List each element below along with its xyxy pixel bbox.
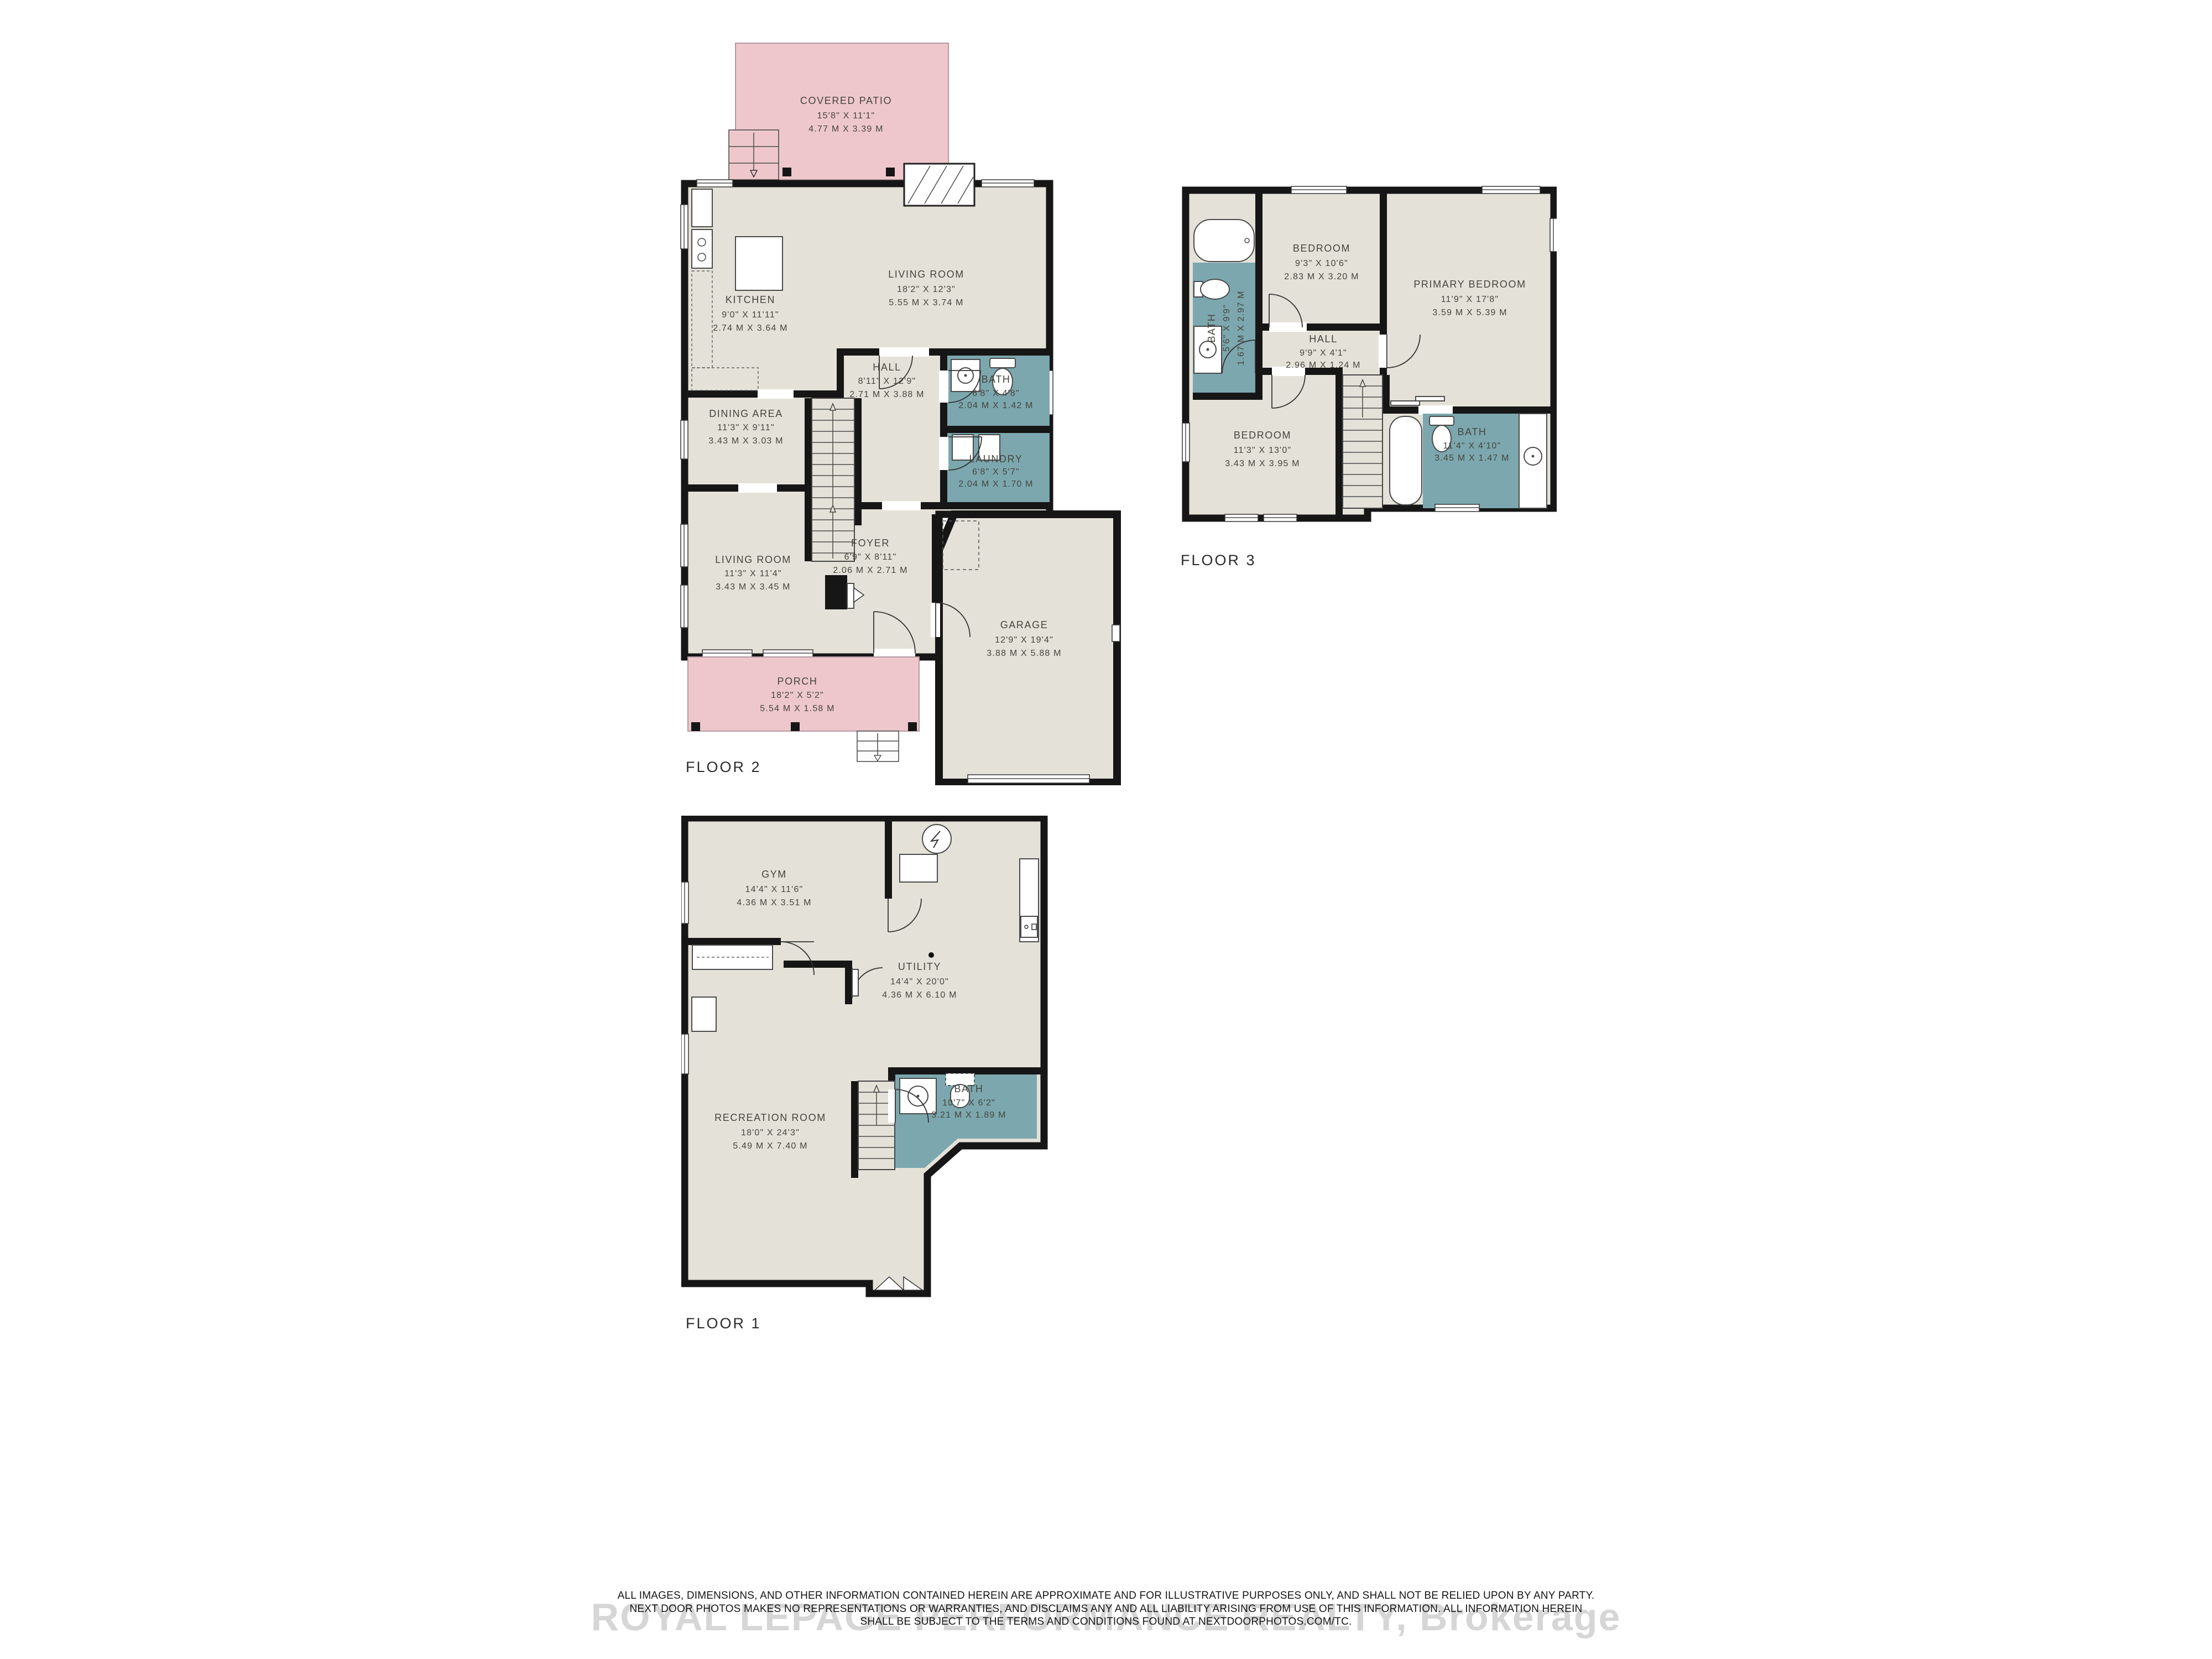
svg-text:11'9" X 17'8": 11'9" X 17'8" <box>1441 295 1499 304</box>
room-label-dining-area: DINING AREA 11'3" X 9'11" 3.43 M X 3.03 … <box>708 408 783 446</box>
svg-text:18'2" X 12'3": 18'2" X 12'3" <box>897 285 956 294</box>
svg-text:BEDROOM: BEDROOM <box>1234 430 1291 441</box>
floor1-plan: GYM 14'4" X 11'6" 4.36 M X 3.51 M UTILIT… <box>681 816 1052 1302</box>
toilet-tank <box>990 358 1015 368</box>
svg-text:14'4" X 20'0": 14'4" X 20'0" <box>890 977 949 987</box>
svg-text:2.04 M X 1.70 M: 2.04 M X 1.70 M <box>958 479 1033 489</box>
floor3-plan: BEDROOM 9'3" X 10'6" 2.83 M X 3.20 M PRI… <box>1181 185 1557 534</box>
floor2-plan: COVERED PATIO 15'8" X 11'1" 4.77 M X 3.3… <box>680 39 1123 785</box>
fireplace <box>904 164 974 206</box>
svg-text:PRIMARY BEDROOM: PRIMARY BEDROOM <box>1413 279 1526 290</box>
svg-text:9'3" X 10'6": 9'3" X 10'6" <box>1295 259 1348 268</box>
svg-text:GYM: GYM <box>761 869 787 880</box>
svg-text:10'7" X 6'2": 10'7" X 6'2" <box>942 1098 995 1108</box>
svg-text:3.88 M X 5.88 M: 3.88 M X 5.88 M <box>987 649 1061 658</box>
staircase-f3 <box>1343 375 1383 508</box>
water-heater <box>922 825 951 853</box>
svg-text:BATH: BATH <box>981 374 1010 385</box>
svg-text:RECREATION ROOM: RECREATION ROOM <box>714 1112 826 1123</box>
svg-text:UTILITY: UTILITY <box>898 961 941 972</box>
svg-text:HALL: HALL <box>1309 333 1337 345</box>
svg-text:11'3" X 11'4": 11'3" X 11'4" <box>724 569 782 578</box>
floor3-label: FLOOR 3 <box>1181 552 1256 569</box>
svg-text:BATH: BATH <box>954 1083 983 1094</box>
disclaimer-line-3: SHALL BE SUBJECT TO THE TERMS AND CONDIT… <box>0 1615 2212 1629</box>
disclaimer-line-2: NEXT DOOR PHOTOS MAKES NO REPRESENTATION… <box>0 1603 2212 1616</box>
svg-text:12'9" X 19'4": 12'9" X 19'4" <box>995 635 1053 645</box>
svg-text:LIVING ROOM: LIVING ROOM <box>888 269 964 280</box>
svg-text:4.36 M X 3.51 M: 4.36 M X 3.51 M <box>737 898 811 907</box>
disclaimer-text: ALL IMAGES, DIMENSIONS, AND OTHER INFORM… <box>0 1589 2212 1629</box>
svg-text:GARAGE: GARAGE <box>1000 619 1048 630</box>
room-label-bedroom-2: BEDROOM 11'3" X 13'0" 3.43 M X 3.95 M <box>1225 430 1300 468</box>
svg-text:KITCHEN: KITCHEN <box>726 294 775 305</box>
room-label-living-room-2: LIVING ROOM 11'3" X 11'4" 3.43 M X 3.45 … <box>715 554 791 592</box>
svg-text:HALL: HALL <box>873 362 901 373</box>
room-label-living-room: LIVING ROOM 18'2" X 12'3" 5.55 M X 3.74 … <box>888 269 964 307</box>
svg-text:9'9" X 4'1": 9'9" X 4'1" <box>1300 348 1347 358</box>
patio-post <box>782 168 791 176</box>
toilet <box>1201 279 1229 299</box>
svg-text:2.06 M X 2.71 M: 2.06 M X 2.71 M <box>833 566 907 575</box>
svg-text:BEDROOM: BEDROOM <box>1293 243 1350 254</box>
porch-post <box>791 722 800 731</box>
patio-stairs <box>729 130 779 180</box>
svg-text:PORCH: PORCH <box>777 676 817 687</box>
svg-text:5.55 M X 3.74 M: 5.55 M X 3.74 M <box>889 298 963 307</box>
svg-text:6'8" X 4'8": 6'8" X 4'8" <box>972 389 1020 398</box>
gym-builtin <box>692 945 773 969</box>
svg-text:BATH: BATH <box>1206 313 1217 342</box>
svg-text:5'6" X 9'9": 5'6" X 9'9" <box>1222 304 1232 352</box>
floor1-exterior-walls <box>685 818 1044 1293</box>
svg-text:BATH: BATH <box>1457 426 1486 437</box>
porch-post <box>691 722 700 731</box>
staircase <box>812 398 854 561</box>
svg-text:11'3" X 13'0": 11'3" X 13'0" <box>1234 446 1292 455</box>
floor2-label: FLOOR 2 <box>686 759 761 776</box>
svg-text:3.21 M X 1.89 M: 3.21 M X 1.89 M <box>931 1110 1006 1120</box>
svg-text:4.36 M X 6.10 M: 4.36 M X 6.10 M <box>882 990 957 1000</box>
svg-text:11'3" X 9'11": 11'3" X 9'11" <box>717 423 775 432</box>
svg-text:2.83 M X 3.20 M: 2.83 M X 3.20 M <box>1284 272 1359 281</box>
svg-text:3.45 M X 1.47 M: 3.45 M X 1.47 M <box>1434 453 1509 463</box>
svg-text:3.43 M X 3.95 M: 3.43 M X 3.95 M <box>1225 459 1300 468</box>
svg-text:FOYER: FOYER <box>851 538 890 549</box>
svg-text:COVERED PATIO: COVERED PATIO <box>800 95 892 106</box>
svg-text:LAUNDRY: LAUNDRY <box>969 453 1023 465</box>
svg-text:LIVING ROOM: LIVING ROOM <box>715 554 791 565</box>
svg-text:1.67 M X 2.97 M: 1.67 M X 2.97 M <box>1237 290 1246 365</box>
floorplan-sheet: COVERED PATIO 15'8" X 11'1" 4.77 M X 3.3… <box>0 0 2212 1659</box>
floor1-label: FLOOR 1 <box>686 1315 761 1332</box>
svg-text:3.59 M X 5.39 M: 3.59 M X 5.39 M <box>1432 308 1507 317</box>
kitchen-island <box>735 237 782 290</box>
disclaimer-line-1: ALL IMAGES, DIMENSIONS, AND OTHER INFORM… <box>0 1589 2212 1603</box>
svg-text:9'0" X 11'11": 9'0" X 11'11" <box>722 310 779 320</box>
svg-text:2.74 M X 3.64 M: 2.74 M X 3.64 M <box>713 324 787 333</box>
bathtub <box>1390 416 1422 505</box>
svg-text:18'2" X 5'2": 18'2" X 5'2" <box>771 691 824 700</box>
svg-text:2.04 M X 1.42 M: 2.04 M X 1.42 M <box>958 401 1033 410</box>
room-label-bedroom: BEDROOM 9'3" X 10'6" 2.83 M X 3.20 M <box>1284 243 1359 281</box>
svg-text:4.77 M X 3.39 M: 4.77 M X 3.39 M <box>808 124 883 134</box>
svg-text:15'8" X 11'1": 15'8" X 11'1" <box>817 111 875 121</box>
svg-text:3.43 M X 3.45 M: 3.43 M X 3.45 M <box>716 582 790 592</box>
floor-drain <box>928 952 934 958</box>
svg-text:11'4" X 4'10": 11'4" X 4'10" <box>1443 441 1501 451</box>
svg-text:6'9" X 8'11": 6'9" X 8'11" <box>844 552 897 562</box>
patio-post <box>886 168 895 176</box>
svg-text:5.54 M X 1.58 M: 5.54 M X 1.58 M <box>760 704 834 713</box>
svg-text:DINING AREA: DINING AREA <box>709 408 783 419</box>
porch-steps <box>857 731 899 761</box>
svg-text:2.71 M X 3.88 M: 2.71 M X 3.88 M <box>849 390 924 399</box>
svg-text:14'4" X 11'6": 14'4" X 11'6" <box>745 885 804 894</box>
porch-post <box>908 722 917 731</box>
stove <box>692 229 712 268</box>
svg-text:5.49 M X 7.40 M: 5.49 M X 7.40 M <box>733 1141 807 1151</box>
svg-text:3.43 M X 3.03 M: 3.43 M X 3.03 M <box>708 436 783 446</box>
svg-text:6'8" X 5'7": 6'8" X 5'7" <box>972 467 1020 477</box>
svg-text:8'11" X 12'9": 8'11" X 12'9" <box>858 377 916 386</box>
svg-text:18'0" X 24'3": 18'0" X 24'3" <box>741 1128 800 1138</box>
svg-text:2.96 M X 1.24 M: 2.96 M X 1.24 M <box>1286 361 1360 370</box>
